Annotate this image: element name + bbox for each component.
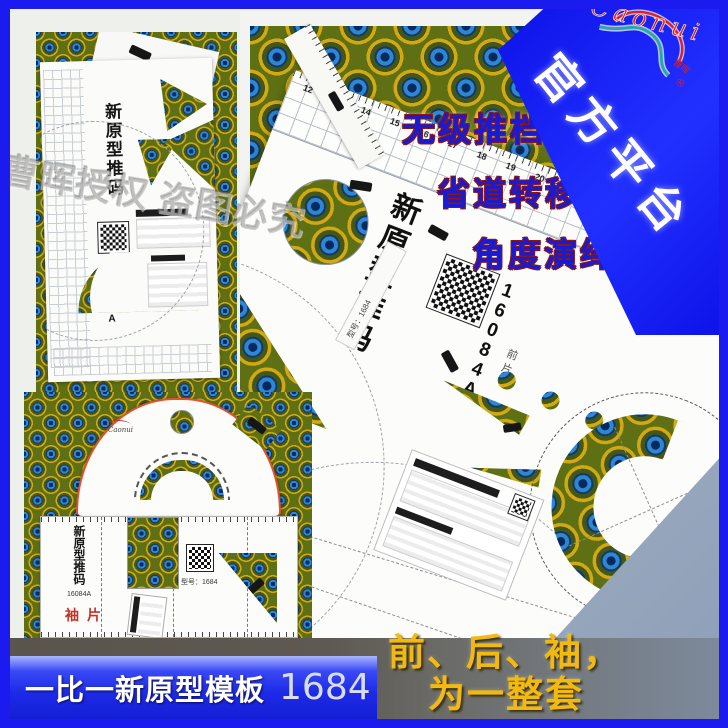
- frame-top: [0, 0, 728, 9]
- ruler-number: 18: [475, 149, 488, 162]
- product-title: 一比一新原型模板: [25, 667, 265, 709]
- ruler-ticks: [41, 632, 297, 637]
- frame-left: [0, 0, 10, 728]
- sleeve-template: 新原型推码 16084A 袖片 型号：1684: [40, 516, 298, 638]
- qr-code: [187, 545, 213, 571]
- notch-label: [441, 350, 460, 374]
- corner-slogan-line2: 为一整套: [428, 664, 584, 718]
- slogan-1: 无级推档: [402, 103, 546, 151]
- notch-label: [427, 224, 449, 242]
- frame-right: [719, 0, 728, 728]
- notch-label: [328, 91, 345, 112]
- product-image: 12131415161718192021222324252627 新原型推码 1…: [0, 0, 728, 728]
- dart-cutout: [160, 78, 207, 131]
- registered-mark: ®: [673, 76, 687, 90]
- bottom-title-bar: 一比一新原型模板 1684: [9, 656, 377, 719]
- ruler-number: 15: [388, 116, 401, 129]
- product-number: 1684: [279, 667, 371, 708]
- notch-cutout: [232, 404, 281, 450]
- info-table: [127, 593, 168, 638]
- template-title: 新原型推码: [71, 525, 88, 589]
- curve-ruler-photo: Caonui 新原型推码 16084A 袖片 型号：1684: [24, 392, 312, 648]
- model-label: 型号：1684: [181, 577, 218, 587]
- piece-label: 袖片: [65, 605, 109, 625]
- grid-footer: [53, 344, 212, 376]
- triangle-cutout: [219, 553, 277, 623]
- arc-slot-mask: [151, 471, 213, 500]
- notch-window: [127, 517, 179, 589]
- curve-ruler: Caonui: [76, 398, 281, 516]
- frame-bottom: [0, 719, 728, 728]
- logo-arc: [106, 420, 130, 429]
- circle-cutout: [170, 410, 194, 434]
- size-table: [138, 597, 164, 635]
- model-code: 16084A: [67, 591, 91, 598]
- notch-label: [246, 416, 267, 435]
- button-hole: [539, 389, 562, 412]
